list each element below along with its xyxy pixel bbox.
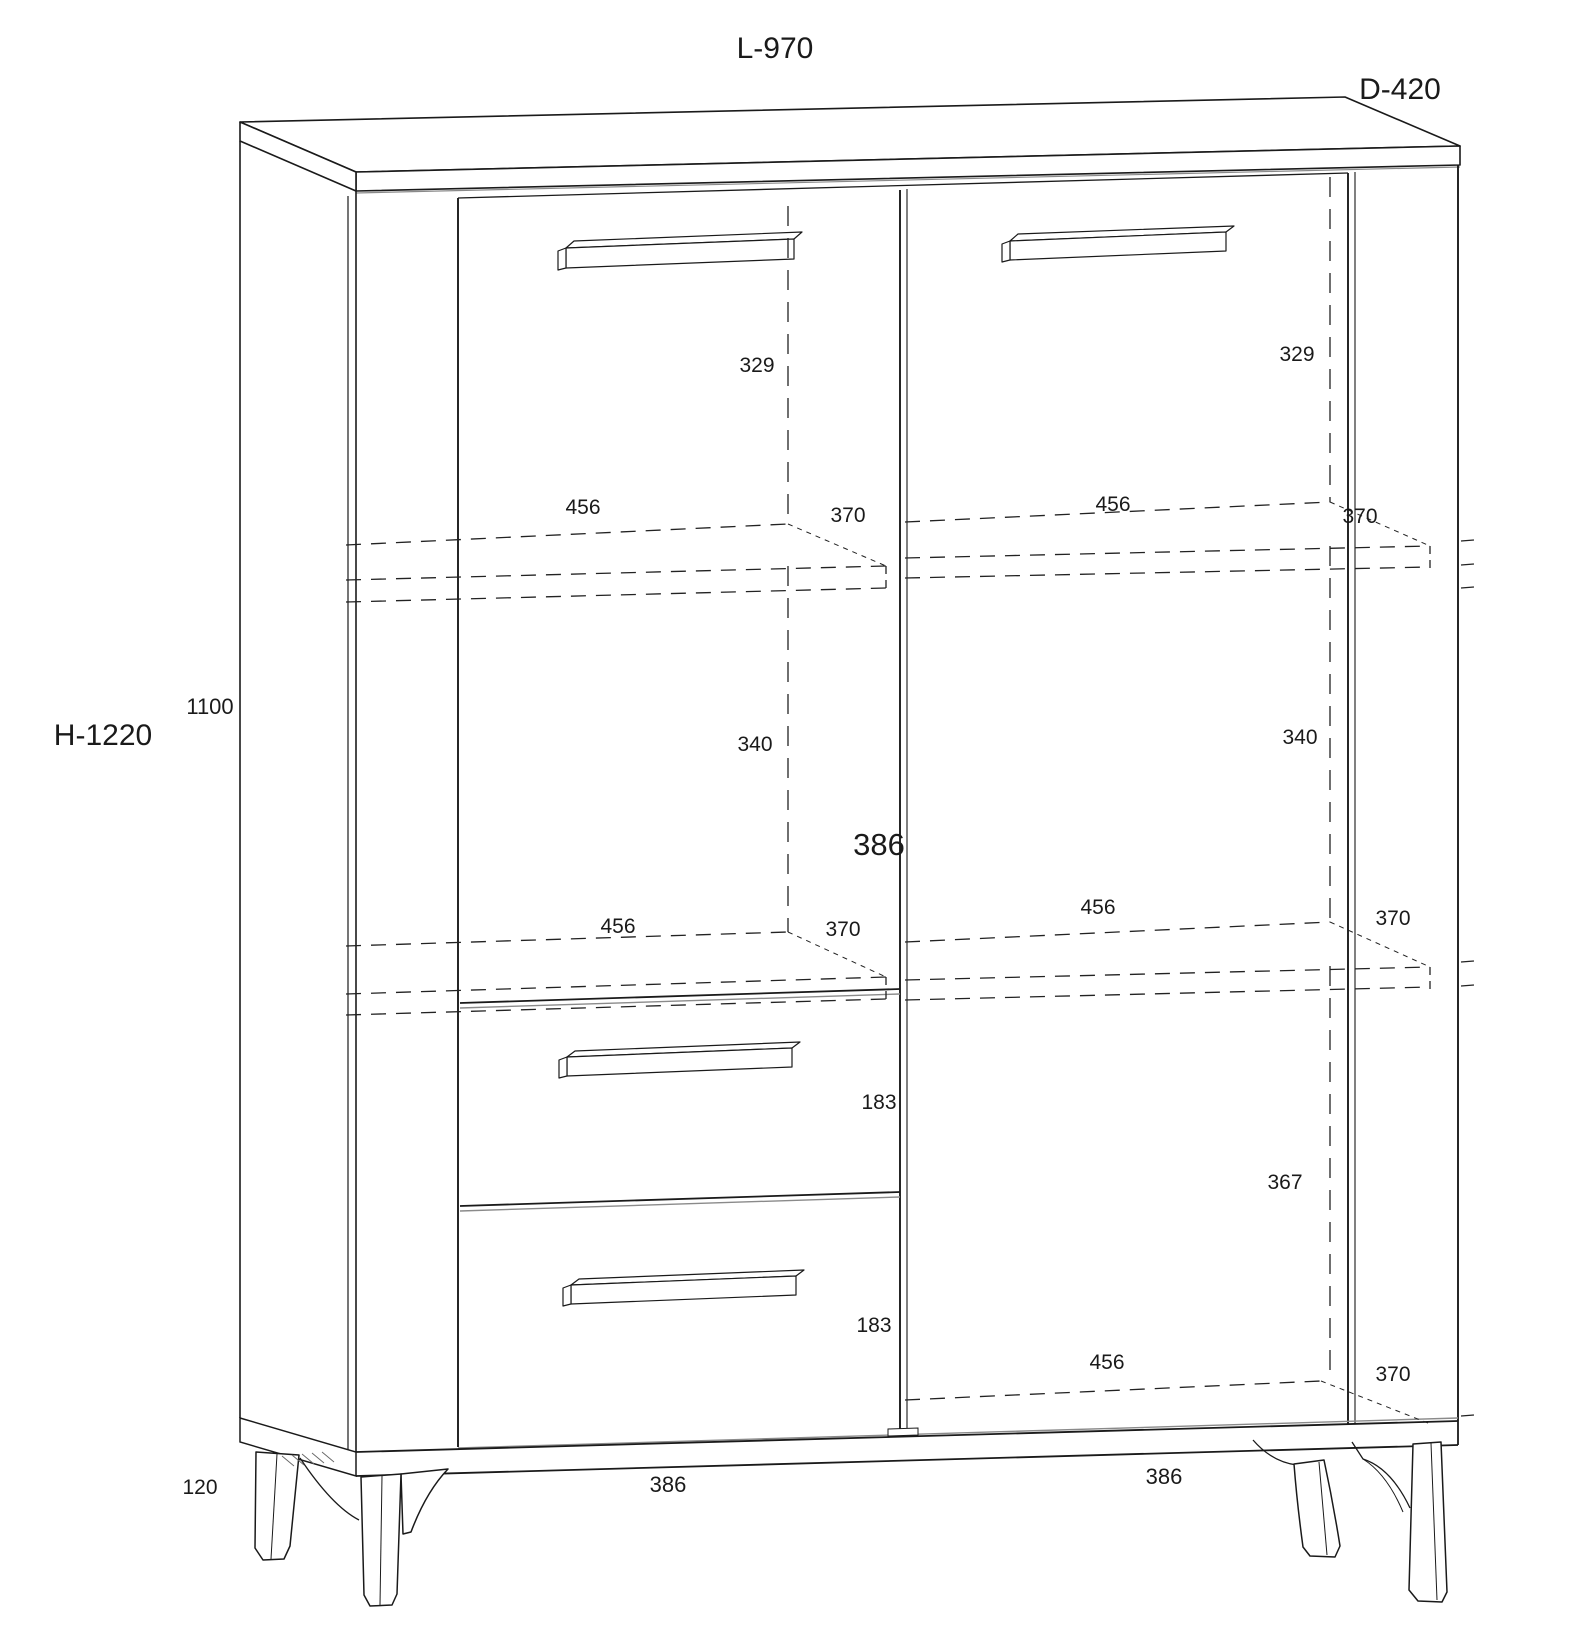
bottom-shelf-right bbox=[905, 1381, 1474, 1423]
dim-carcass-height: 1100 bbox=[186, 694, 233, 719]
hidden-vertical-lines bbox=[788, 177, 1330, 1381]
drawer1-handle bbox=[559, 1042, 800, 1078]
shelf2-right bbox=[905, 922, 1474, 1000]
dim-shelf2-left-depth: 370 bbox=[825, 918, 860, 941]
dim-right-handle-offset: 329 bbox=[1279, 343, 1314, 366]
left-door-handle bbox=[558, 232, 802, 270]
dim-shelf2-right-depth: 370 bbox=[1375, 907, 1410, 930]
right-door-handle bbox=[1002, 226, 1234, 262]
dim-base-width-left: 386 bbox=[650, 1472, 687, 1497]
front-left-leg bbox=[361, 1469, 448, 1606]
top-panel bbox=[240, 97, 1460, 191]
legs bbox=[255, 1440, 1447, 1606]
back-right-leg bbox=[1253, 1440, 1340, 1557]
dim-left-handle-offset: 329 bbox=[739, 354, 774, 377]
dim-shelf2-right-width: 456 bbox=[1080, 896, 1115, 919]
dim-drawer2-height: 183 bbox=[856, 1314, 891, 1337]
dim-mid-left-height: 340 bbox=[737, 733, 772, 756]
dim-interior-width: 386 bbox=[853, 827, 905, 862]
drawing-svg: L-970 D-420 H-1220 1100 120 329 329 456 … bbox=[0, 0, 1573, 1652]
dim-bottom-shelf-right-depth: 370 bbox=[1375, 1363, 1410, 1386]
dim-right-lower-height: 367 bbox=[1267, 1171, 1302, 1194]
dim-shelf1-left-depth: 370 bbox=[830, 504, 865, 527]
dim-overall-depth: D-420 bbox=[1359, 73, 1441, 106]
dim-leg-height: 120 bbox=[182, 1476, 217, 1499]
dim-overall-height: H-1220 bbox=[54, 719, 152, 752]
dim-bottom-shelf-right-width: 456 bbox=[1089, 1351, 1124, 1374]
shelf1-right bbox=[905, 502, 1474, 588]
dim-shelf2-left-width: 456 bbox=[600, 915, 635, 938]
dim-shelf1-left-width: 456 bbox=[565, 496, 600, 519]
shelf1-left bbox=[346, 524, 886, 602]
divider-foot bbox=[888, 1428, 918, 1436]
dim-drawer1-height: 183 bbox=[861, 1091, 896, 1114]
drawer-lines bbox=[460, 989, 900, 1211]
front-right-leg bbox=[1352, 1442, 1447, 1602]
dim-overall-width: L-970 bbox=[737, 32, 814, 65]
drawer2-handle bbox=[563, 1270, 804, 1306]
dim-shelf1-right-width: 456 bbox=[1095, 493, 1130, 516]
dim-mid-right-height: 340 bbox=[1282, 726, 1317, 749]
dim-base-width-right: 386 bbox=[1146, 1464, 1183, 1489]
back-left-leg bbox=[255, 1452, 299, 1560]
handles bbox=[558, 226, 1234, 1306]
carcass bbox=[240, 141, 1458, 1476]
cabinet-technical-drawing: L-970 D-420 H-1220 1100 120 329 329 456 … bbox=[0, 0, 1573, 1652]
dim-shelf1-right-depth: 370 bbox=[1342, 505, 1377, 528]
